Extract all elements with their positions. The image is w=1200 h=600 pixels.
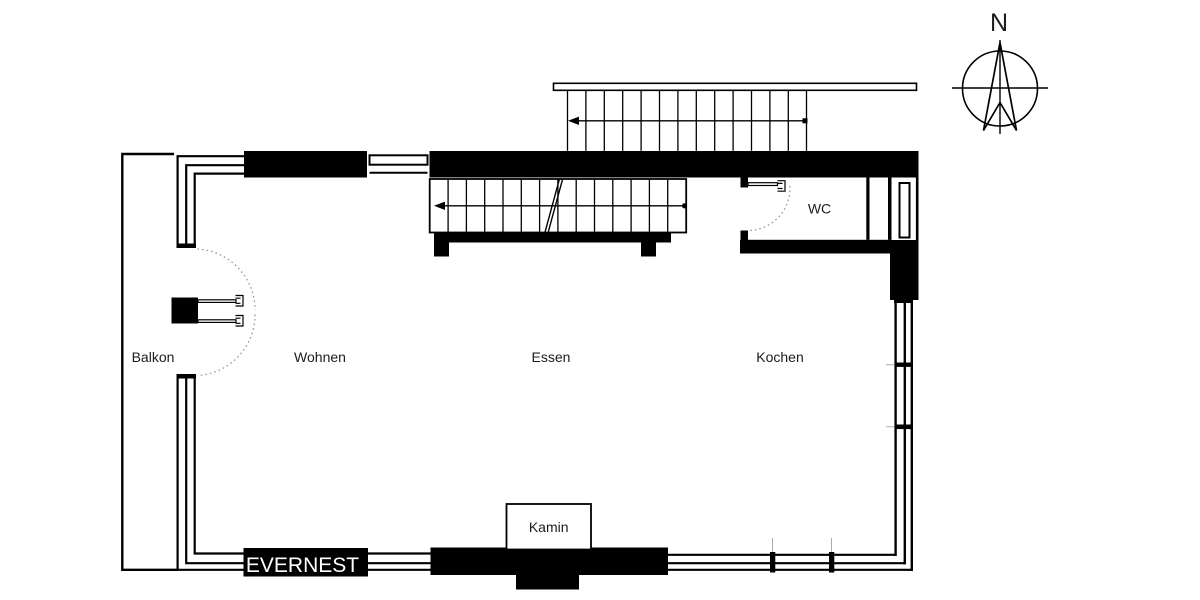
svg-text:N: N [990, 9, 1008, 37]
svg-text:Essen: Essen [532, 349, 571, 365]
svg-text:EVERNEST: EVERNEST [246, 554, 359, 577]
svg-text:WC: WC [808, 201, 831, 217]
svg-text:Kamin: Kamin [529, 519, 569, 535]
svg-text:Kochen: Kochen [756, 349, 803, 365]
svg-text:Balkon: Balkon [132, 349, 175, 365]
svg-text:Wohnen: Wohnen [294, 349, 346, 365]
